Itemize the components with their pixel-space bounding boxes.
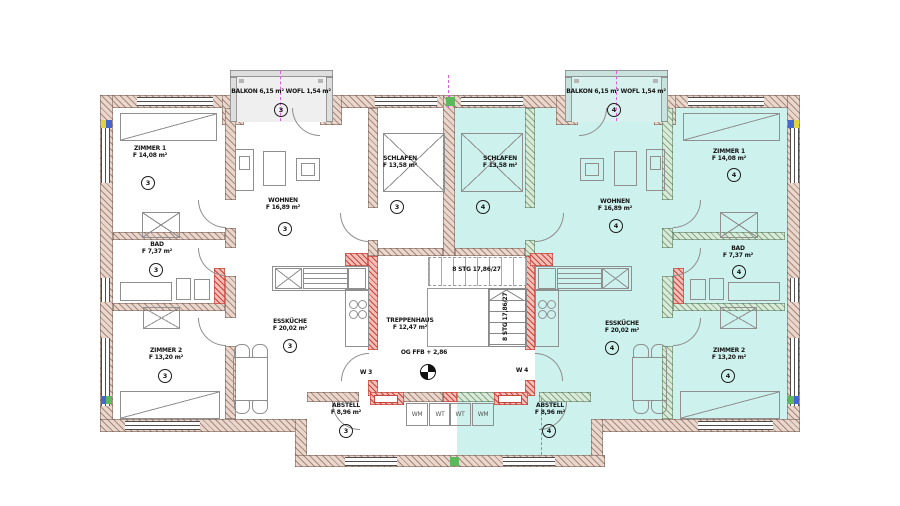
room-area: F 16,89 m² <box>585 206 645 213</box>
label-abstell-left: ABSTELL F 8,96 m² <box>316 403 376 417</box>
unit-number-badge: 3 <box>339 424 353 438</box>
label-zimmer2-left: ZIMMER 2 F 13,20 m² <box>136 348 196 362</box>
room-area: F 13,20 m² <box>699 355 759 362</box>
room-area: F 7,37 m² <box>708 253 768 260</box>
label-wohnen-left: WOHNEN F 16,89 m² <box>253 198 313 212</box>
unit-number-badge: 4 <box>609 219 623 233</box>
room-area: F 20,02 m² <box>592 328 652 335</box>
label-bad-left: BAD F 7,37 m² <box>127 242 187 256</box>
room-area: F 13,20 m² <box>136 355 196 362</box>
unit-number-badge: 4 <box>605 341 619 355</box>
unit-number-badge: 4 <box>607 103 621 117</box>
unit-number-badge: 4 <box>727 168 741 182</box>
label-stair-upper: 8 STG 17,86/27 <box>428 267 525 274</box>
room-area: F 13,58 m² <box>470 163 530 170</box>
label-schlafen-right: SCHLAFEN F 13,58 m² <box>470 156 530 170</box>
label-stair-lower: 8 STG 17,86/27 <box>503 292 514 342</box>
label-esskueche-right: ESSKÜCHE F 20,02 m² <box>592 321 652 335</box>
room-area: F 14,08 m² <box>699 156 759 163</box>
room-area: F 16,89 m² <box>253 205 313 212</box>
label-w4: W 4 <box>508 368 536 375</box>
label-balkon-right: BALKON 6,15 m² WOFL 1,54 m² <box>562 89 670 96</box>
unit-number-badge: 4 <box>542 424 556 438</box>
room-area: F 12,47 m² <box>378 325 442 332</box>
room-area: F 13,58 m² <box>370 163 430 170</box>
label-level: OG FFB + 2,86 <box>384 350 464 357</box>
room-area: F 8,96 m² <box>316 410 376 417</box>
room-area: F 14,08 m² <box>120 153 180 160</box>
label-zimmer2-right: ZIMMER 2 F 13,20 m² <box>699 348 759 362</box>
label-schlafen-left: SCHLAFEN F 13,58 m² <box>370 156 430 170</box>
label-zimmer1-right: ZIMMER 1 F 14,08 m² <box>699 149 759 163</box>
unit-number-badge: 4 <box>732 265 746 279</box>
unit-number-badge: 3 <box>390 200 404 214</box>
unit-number-badge: 3 <box>283 339 297 353</box>
label-w3: W 3 <box>352 370 380 377</box>
label-treppenhaus: TREPPENHAUS F 12,47 m² <box>378 318 442 332</box>
unit-number-badge: 4 <box>721 369 735 383</box>
unit-number-badge: 3 <box>274 103 288 117</box>
unit-number-badge: 4 <box>476 200 490 214</box>
room-area: F 20,02 m² <box>260 326 320 333</box>
unit-number-badge: 3 <box>278 222 292 236</box>
label-balkon-left: BALKON 6,15 m² WOFL 1,54 m² <box>227 89 335 96</box>
label-wohnen-right: WOHNEN F 16,89 m² <box>585 199 645 213</box>
label-zimmer1-left: ZIMMER 1 F 14,08 m² <box>120 146 180 160</box>
room-area: F 7,37 m² <box>127 249 187 256</box>
room-area: F 8,96 m² <box>520 410 580 417</box>
floor-plan: WM WT WT WM <box>0 0 900 506</box>
label-bad-right: BAD F 7,37 m² <box>708 246 768 260</box>
labels: BALKON 6,15 m² WOFL 1,54 m² 3 ZIMMER 1 F… <box>0 0 900 506</box>
unit-number-badge: 3 <box>141 176 155 190</box>
unit-number-badge: 3 <box>158 369 172 383</box>
unit-number-badge: 3 <box>149 263 163 277</box>
label-esskueche-left: ESSKÜCHE F 20,02 m² <box>260 319 320 333</box>
label-abstell-right: ABSTELL F 8,96 m² <box>520 403 580 417</box>
